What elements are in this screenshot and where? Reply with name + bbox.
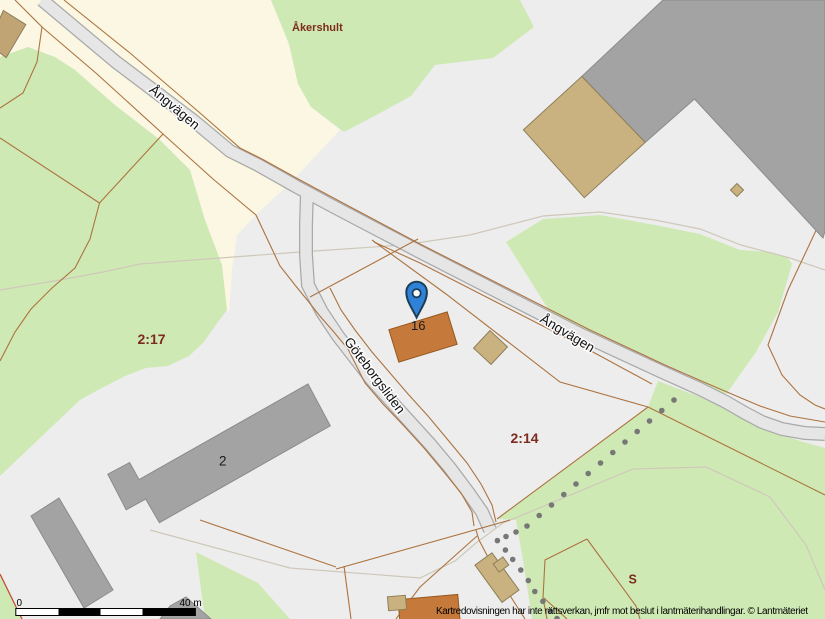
svg-text:Åkershult: Åkershult bbox=[292, 21, 343, 34]
svg-text:40 m: 40 m bbox=[180, 598, 202, 609]
svg-text:S: S bbox=[629, 573, 637, 587]
svg-text:Kartredovisningen har inte rät: Kartredovisningen har inte rättsverkan, … bbox=[436, 606, 808, 617]
svg-text:0: 0 bbox=[17, 598, 23, 609]
svg-text:2: 2 bbox=[219, 454, 227, 469]
svg-text:16: 16 bbox=[411, 318, 425, 333]
svg-text:2:14: 2:14 bbox=[511, 430, 539, 446]
svg-text:2:17: 2:17 bbox=[138, 331, 166, 347]
